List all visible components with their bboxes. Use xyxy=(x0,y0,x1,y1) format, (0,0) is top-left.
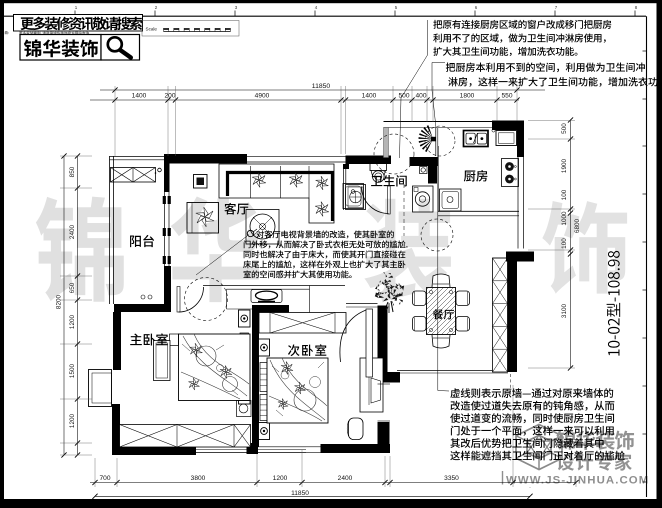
svg-text:100: 100 xyxy=(561,189,568,200)
svg-text:2400: 2400 xyxy=(338,475,353,482)
svg-text:500: 500 xyxy=(398,93,409,100)
svg-text:850: 850 xyxy=(69,166,76,177)
svg-text:550: 550 xyxy=(501,93,512,100)
svg-text:11850: 11850 xyxy=(291,490,309,497)
svg-text:Scale: Scale xyxy=(146,27,158,32)
svg-text:100: 100 xyxy=(561,238,568,249)
svg-text:3100: 3100 xyxy=(561,303,568,318)
svg-text:200: 200 xyxy=(164,93,175,100)
svg-text:1800: 1800 xyxy=(460,93,475,100)
svg-text:2400: 2400 xyxy=(69,224,76,239)
svg-text:4900: 4900 xyxy=(255,93,270,100)
svg-text:3800: 3800 xyxy=(191,475,206,482)
svg-text:700: 700 xyxy=(99,475,110,482)
svg-text:11850: 11850 xyxy=(312,83,331,90)
svg-text:650: 650 xyxy=(69,282,76,293)
svg-text:1400: 1400 xyxy=(132,93,147,100)
svg-text:3350: 3350 xyxy=(444,475,459,482)
svg-text:1200: 1200 xyxy=(273,475,288,482)
svg-text:1200: 1200 xyxy=(69,314,76,329)
svg-text:8200: 8200 xyxy=(56,294,63,309)
svg-text:6800: 6800 xyxy=(574,218,581,233)
svg-text:1400: 1400 xyxy=(362,93,377,100)
svg-text:400: 400 xyxy=(415,93,426,100)
svg-text:1000: 1000 xyxy=(561,211,568,226)
svg-text:1500: 1500 xyxy=(69,363,76,378)
svg-text:1900: 1900 xyxy=(561,158,568,173)
svg-text:500: 500 xyxy=(561,123,568,134)
svg-text:1200: 1200 xyxy=(69,413,76,428)
